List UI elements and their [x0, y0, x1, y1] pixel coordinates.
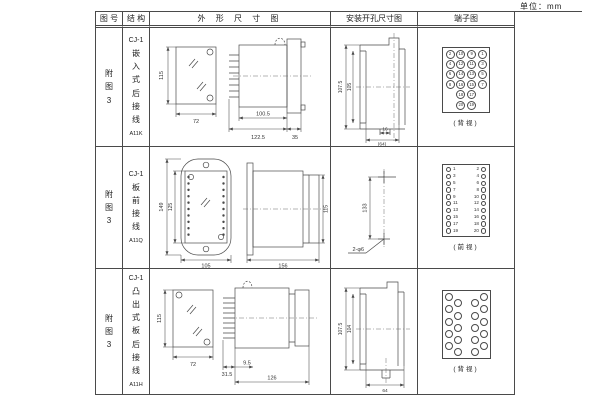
terminal-circle — [454, 312, 462, 320]
terminal-circle — [446, 221, 451, 226]
cell-terminal-row1: 2109141211361413581615718172019 (背视) — [418, 28, 514, 147]
terminal-number: 6 — [470, 181, 479, 186]
figure-no-row2: 附图3 — [104, 188, 115, 228]
terminal-circle — [481, 174, 486, 179]
terminal-number: 9 — [453, 195, 456, 200]
mounting-drawing-row2: 133 2-φ6 — [332, 147, 417, 269]
code-row1: A11K — [129, 131, 142, 137]
terminal-circle: 18 — [456, 90, 465, 99]
cell-structure-row2: CJ-1 板前接线 A11Q — [123, 147, 150, 269]
terminal-circle: 10 — [456, 50, 465, 59]
terminal-circle — [445, 330, 453, 338]
terminal-circle: 19 — [467, 101, 476, 110]
dim-len-row3: 126 — [267, 375, 276, 381]
dim-mount-inner-row3: 104 — [347, 324, 353, 333]
terminal-number: 5 — [453, 181, 456, 186]
terminal-circle — [481, 221, 486, 226]
cell-figure-row2: 附图3 — [96, 147, 123, 269]
terminal-circle — [454, 336, 462, 344]
terminal-circle: 8 — [446, 80, 455, 89]
terminal-number: 15 — [453, 215, 458, 220]
terminal-circle: 13 — [467, 70, 476, 79]
terminal-number: 19 — [453, 229, 458, 234]
terminal-circle — [481, 187, 486, 192]
terminal-circle — [445, 293, 453, 301]
outline-drawing-row1: 115 72 100.5 122.5 35 — [151, 29, 330, 146]
terminal-circle: 7 — [478, 80, 487, 89]
cell-figure-row1: 附图3 — [96, 28, 123, 147]
dim-front-height-row3: 115 — [157, 314, 163, 323]
terminal-circle: 9 — [467, 50, 476, 59]
cell-outline-row1: 115 72 100.5 122.5 35 — [150, 28, 331, 147]
header-structure: 结 构 — [123, 12, 150, 28]
dim-flange-row1: 35 — [291, 135, 297, 141]
terminal-circle — [446, 201, 451, 206]
structure-row2: 板前接线 — [131, 181, 142, 234]
cell-structure-row1: CJ-1 嵌入式后接线 A11K — [123, 28, 150, 147]
dim-sideh-row2: 115 — [323, 204, 329, 212]
terminal-circle: 20 — [456, 101, 465, 110]
terminal-circle — [471, 312, 479, 320]
terminal-number: 2 — [470, 167, 479, 172]
terminal-circle — [481, 228, 486, 233]
dim-width-row2: 105 — [201, 263, 210, 269]
terminal-circle — [471, 336, 479, 344]
terminal-circle — [471, 324, 479, 332]
terminal-number: 14 — [470, 208, 479, 213]
header-outline: 外 形 尺 寸 图 — [150, 12, 331, 28]
terminal-circle — [480, 318, 488, 326]
terminal-caption-row3: (背视) — [453, 363, 478, 373]
terminal-number: 7 — [453, 188, 456, 193]
terminal-number: 17 — [453, 222, 458, 227]
terminal-number: 12 — [470, 201, 479, 206]
dim-mount-slot-row1: 16 — [382, 126, 388, 132]
terminal-circle: 3 — [478, 60, 487, 69]
dim-body-row1: 100.5 — [256, 111, 270, 117]
terminal-number: 20 — [470, 229, 479, 234]
figure-no-row3: 附图3 — [104, 312, 115, 352]
cell-figure-row3: 附图3 — [96, 269, 123, 394]
terminal-number: 8 — [470, 188, 479, 193]
terminal-circle — [446, 215, 451, 220]
terminal-caption-row2: (前视) — [453, 241, 478, 251]
dim-outerh-row2: 149 — [159, 202, 165, 211]
terminal-circle — [471, 348, 479, 356]
terminal-circle — [446, 187, 451, 192]
terminal-circle: 5 — [478, 70, 487, 79]
terminal-circle — [454, 299, 462, 307]
terminal-circle — [481, 208, 486, 213]
dim-mount-outer-row3: 107.5 — [338, 322, 344, 335]
terminal-circle — [445, 318, 453, 326]
cell-mounting-row3: 107.5 104 64 — [331, 269, 418, 394]
terminal-number: 11 — [453, 201, 458, 206]
model-row2: CJ-1 — [129, 171, 144, 178]
terminal-circle: 14 — [456, 70, 465, 79]
terminal-number: 18 — [470, 222, 479, 227]
dim-mount-width-row3: 64 — [382, 388, 388, 394]
dim-front-width-row1: 72 — [192, 119, 198, 125]
terminal-circle — [446, 228, 451, 233]
terminal-circle — [481, 215, 486, 220]
terminal-circle — [446, 174, 451, 179]
dim-mount-overall-row1: (64) — [377, 141, 386, 146]
terminal-number: 10 — [470, 195, 479, 200]
terminal-number: 1 — [453, 167, 456, 172]
terminal-circle — [454, 324, 462, 332]
dim-front-width-row3: 72 — [189, 362, 195, 368]
spec-table: 图 号 结 构 外 形 尺 寸 图 安装开孔尺寸图 端子图 附图3 CJ-1 嵌… — [95, 11, 515, 395]
cell-terminal-row2: 1234567891011121314151617181920 (前视) — [418, 147, 514, 269]
dim-len-row2: 156 — [278, 263, 287, 269]
code-row3: A11H — [129, 382, 142, 388]
terminal-number: 4 — [470, 174, 479, 179]
terminal-number: 16 — [470, 215, 479, 220]
terminal-diagram-row3 — [442, 290, 491, 359]
cell-outline-row3: 115 72 31.5 9.5 126 — [150, 269, 331, 394]
dim-mount-inner-row1: 105 — [347, 82, 353, 91]
terminal-circle — [446, 167, 451, 172]
terminal-diagram-row1: 2109141211361413581615718172019 — [442, 47, 490, 113]
terminal-circle — [480, 330, 488, 338]
terminal-circle — [446, 181, 451, 186]
terminal-circle: 12 — [456, 60, 465, 69]
terminal-circle: 2 — [446, 50, 455, 59]
terminal-circle: 6 — [446, 70, 455, 79]
dim-holes-row2: 2-φ6 — [352, 247, 364, 253]
terminal-circle — [445, 342, 453, 350]
model-row1: CJ-1 — [129, 37, 144, 44]
unit-underline — [514, 11, 582, 12]
model-row3: CJ-1 — [129, 275, 144, 282]
terminal-circle: 15 — [467, 80, 476, 89]
mounting-drawing-row1: 107.5 105 16 (64) — [332, 29, 417, 146]
dim-total-row1: 122.5 — [251, 135, 265, 141]
terminal-circle — [481, 201, 486, 206]
dim-innerh-row2: 125 — [168, 202, 174, 211]
figure-no-row1: 附图3 — [104, 67, 115, 107]
dim-front-height-row1: 115 — [159, 71, 165, 80]
cell-outline-row2: 149 125 105 156 115 — [150, 147, 331, 269]
code-row2: A11Q — [129, 238, 143, 244]
structure-row3: 凸出式板后接线 — [131, 285, 142, 377]
header-figure: 图 号 — [96, 12, 123, 28]
terminal-circle: 16 — [456, 80, 465, 89]
terminal-circle — [481, 194, 486, 199]
terminal-circle — [480, 342, 488, 350]
dim-pin-row3: 31.5 — [221, 372, 232, 378]
terminal-circle: 11 — [467, 60, 476, 69]
terminal-caption-row1: (背视) — [453, 117, 478, 127]
terminal-circle: 1 — [478, 50, 487, 59]
terminal-circle — [481, 181, 486, 186]
terminal-circle: 4 — [446, 60, 455, 69]
terminal-circle — [446, 194, 451, 199]
outline-drawing-row3: 115 72 31.5 9.5 126 — [151, 270, 330, 394]
cell-terminal-row3: (背视) — [418, 269, 514, 394]
terminal-diagram-row2: 1234567891011121314151617181920 — [442, 164, 490, 237]
cell-mounting-row2: 133 2-φ6 — [331, 147, 418, 269]
terminal-circle: 17 — [467, 90, 476, 99]
header-terminal: 端子图 — [418, 12, 514, 28]
terminal-number: 13 — [453, 208, 458, 213]
terminal-circle — [471, 299, 479, 307]
header-mounting: 安装开孔尺寸图 — [331, 12, 418, 28]
terminal-circle — [480, 305, 488, 313]
cell-structure-row3: CJ-1 凸出式板后接线 A11H — [123, 269, 150, 394]
terminal-circle — [446, 208, 451, 213]
terminal-circle — [454, 348, 462, 356]
dim-spacing-row2: 133 — [362, 203, 368, 212]
dim-tip-row3: 9.5 — [243, 360, 251, 366]
terminal-circle — [445, 305, 453, 313]
terminal-circle — [480, 293, 488, 301]
structure-row1: 嵌入式后接线 — [131, 47, 142, 126]
mounting-drawing-row3: 107.5 104 64 — [332, 270, 417, 394]
dim-mount-outer-row1: 107.5 — [338, 80, 344, 93]
outline-drawing-row2: 149 125 105 156 115 — [151, 147, 330, 269]
cell-mounting-row1: 107.5 105 16 (64) — [331, 28, 418, 147]
terminal-circle — [481, 167, 486, 172]
terminal-number: 3 — [453, 174, 456, 179]
